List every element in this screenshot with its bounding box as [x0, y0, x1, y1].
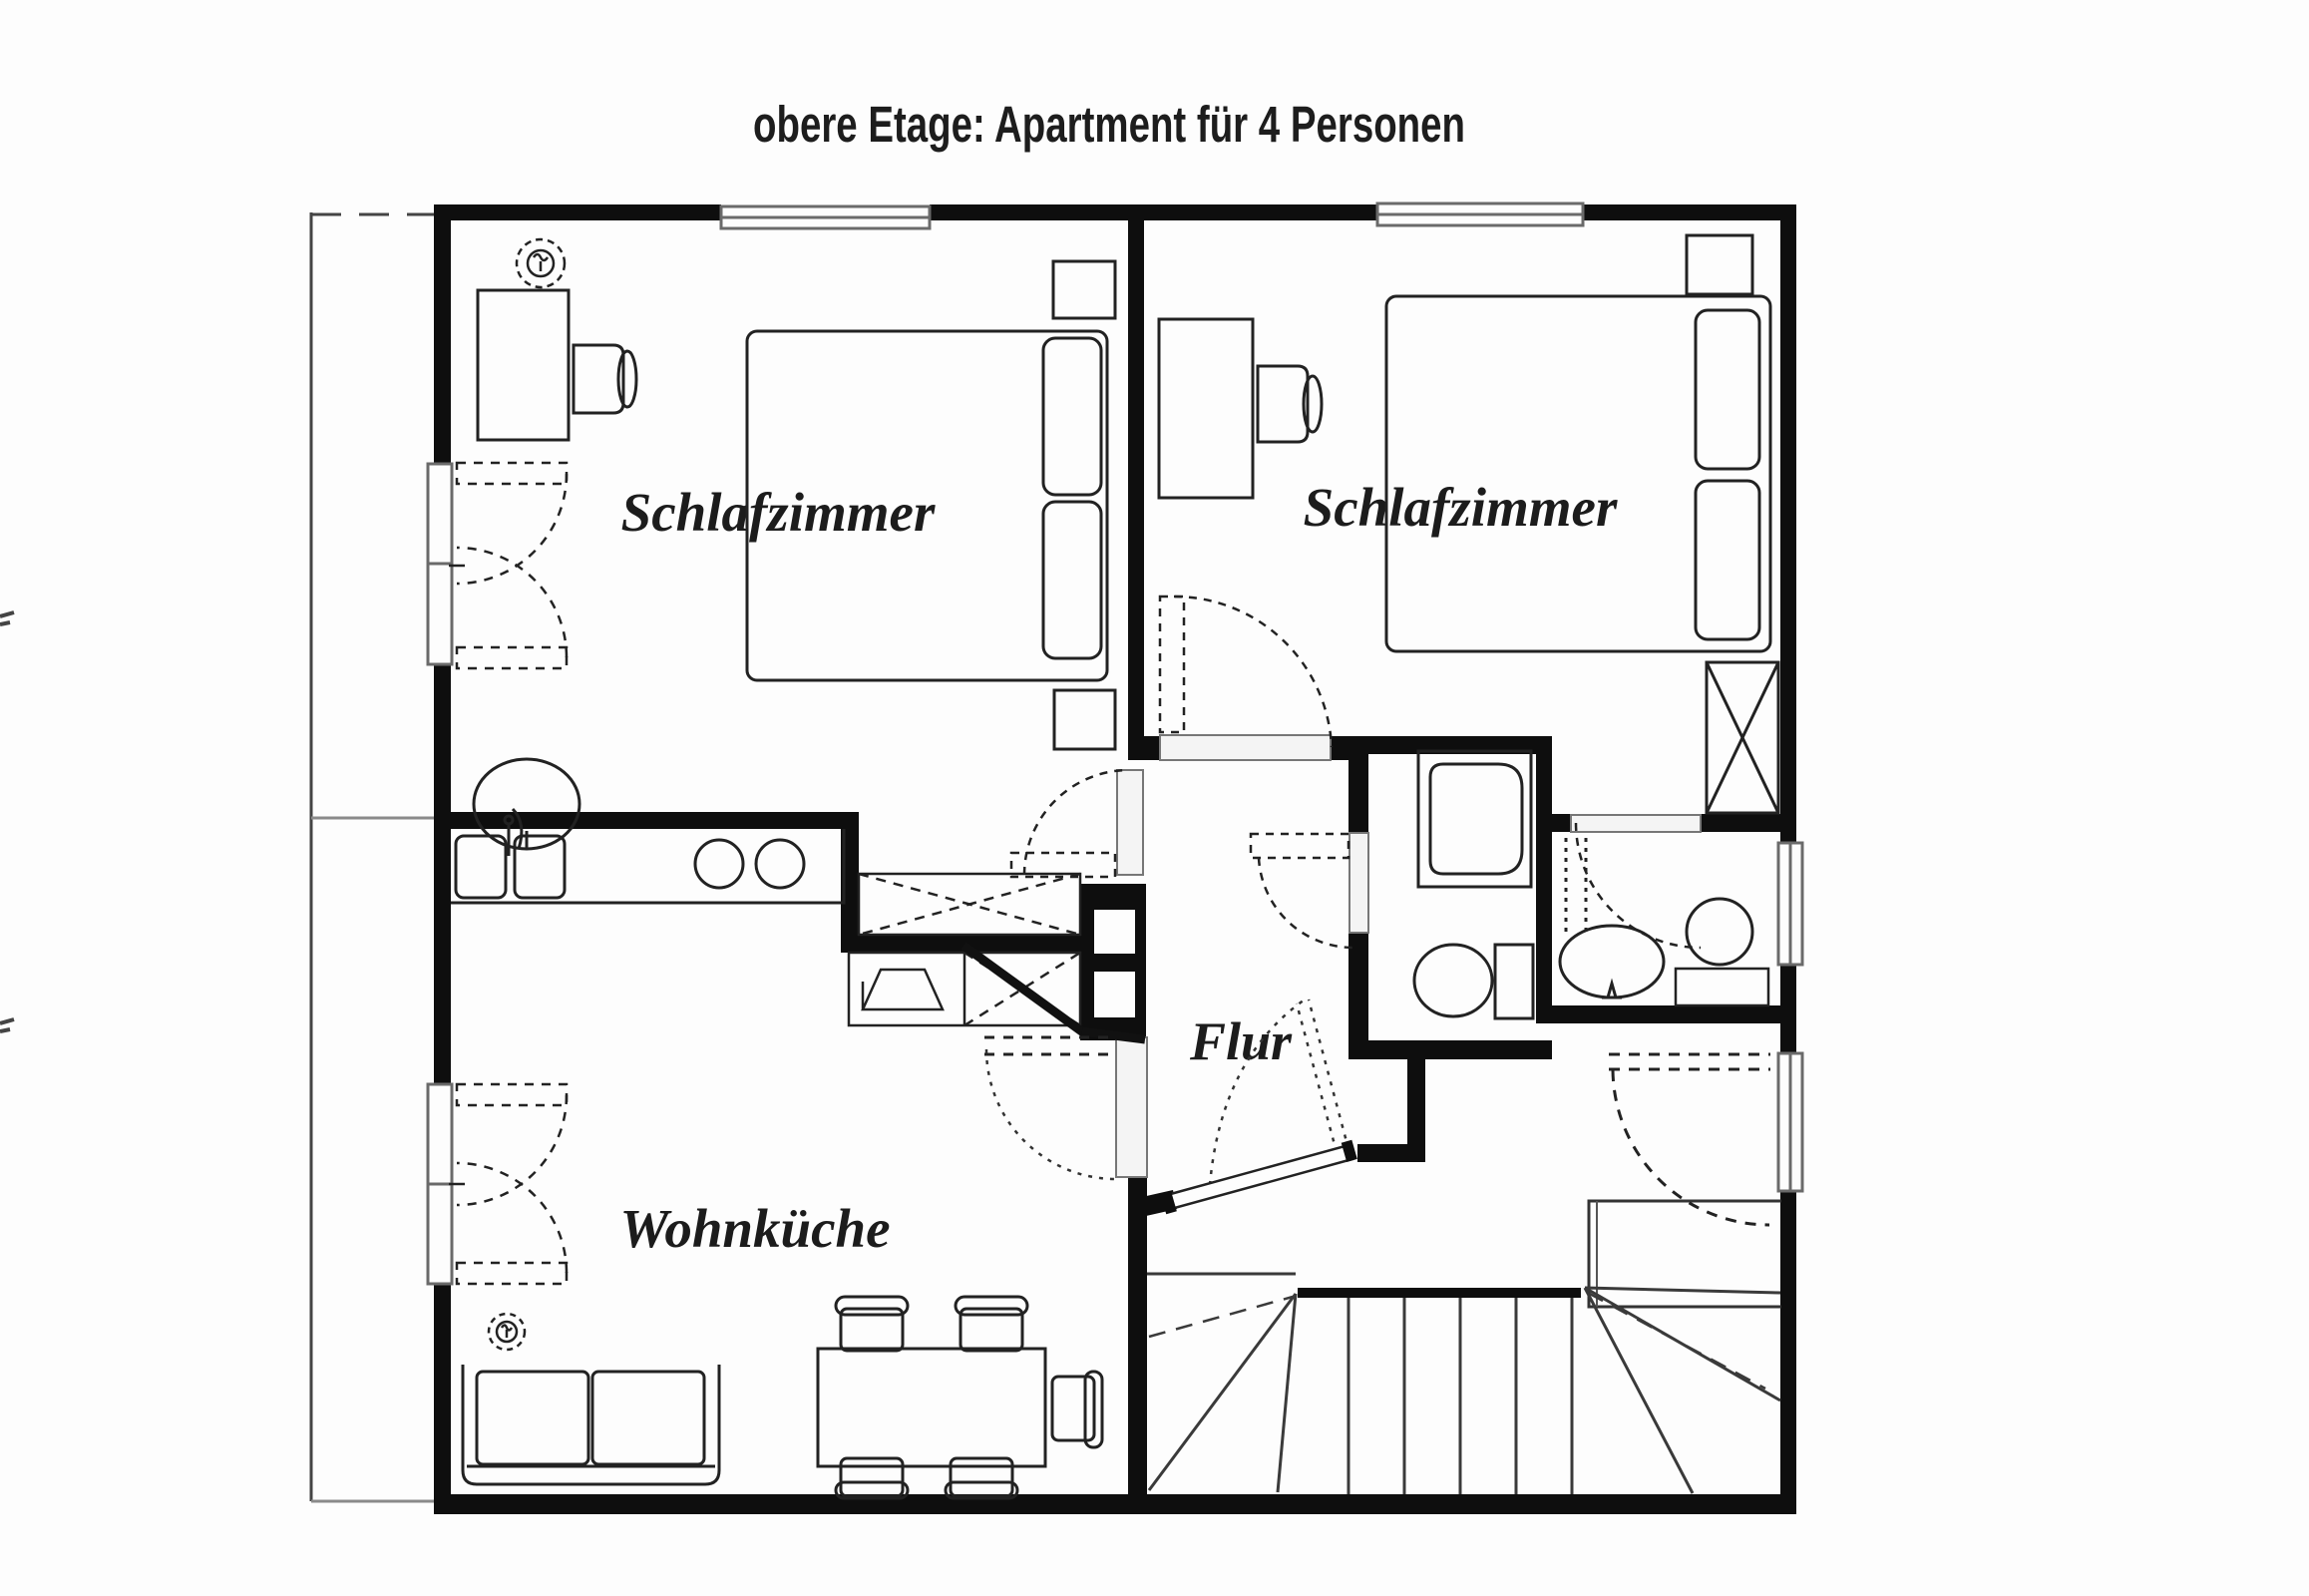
- svg-text:Flur: Flur: [1189, 1011, 1293, 1071]
- svg-text:Schlafzimmer: Schlafzimmer: [1304, 477, 1618, 538]
- svg-text:Schlafzimmer: Schlafzimmer: [621, 482, 936, 543]
- svg-text:Wohnküche: Wohnküche: [620, 1198, 891, 1259]
- svg-text:obere Etage: Apartment für 4 P: obere Etage: Apartment für 4 Personen: [753, 96, 1465, 153]
